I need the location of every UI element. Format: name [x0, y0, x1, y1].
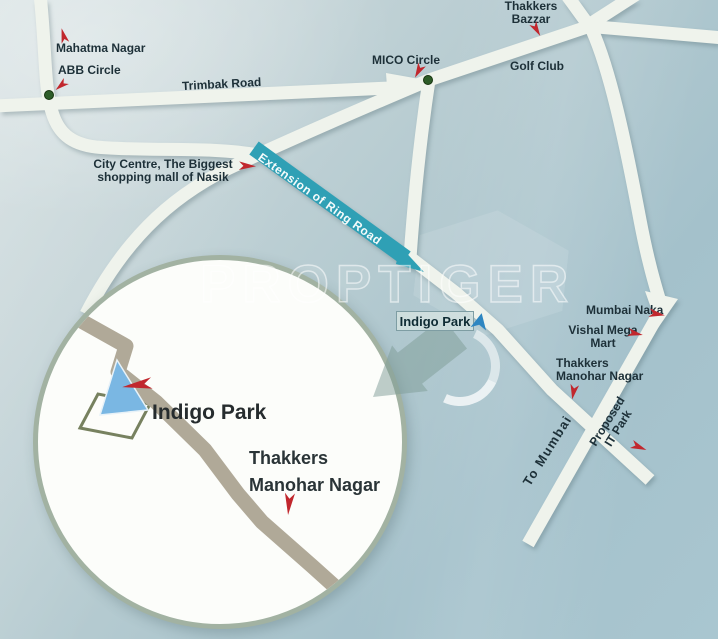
inset-thakkers-label-line1: Thakkers — [249, 448, 328, 469]
location-map: Indigo Park Thakkers Manohar Nagar Mahat… — [0, 0, 718, 639]
thakkers-manohar-label: Thakkers Manohar Nagar — [556, 357, 643, 383]
top-right-road-path — [586, 26, 718, 38]
city-centre-label: City Centre, The Biggest shopping mall o… — [92, 158, 234, 184]
thakkers-bazzar-line2: Bazzar — [496, 13, 566, 26]
vishal-mega-mart-label: Vishal Mega Mart — [568, 324, 638, 350]
golf-club-label: Golf Club — [510, 60, 564, 73]
abb-circle-label: ABB Circle — [58, 64, 121, 77]
mico-circle-dot-icon — [424, 76, 433, 85]
abb-circle-dot-icon — [45, 91, 54, 100]
thakkers-bazzar-label: Thakkers Bazzar — [496, 0, 566, 26]
mico-circle-label: MICO Circle — [372, 54, 440, 67]
thakkers-manohar-line2: Manohar Nagar — [556, 370, 643, 383]
mico-south-road-path — [410, 80, 429, 258]
inset-thakkers-label-line2: Manohar Nagar — [249, 475, 380, 496]
mumbai-naka-road-path — [566, 0, 661, 305]
vishal-mega-mart-line2: Mart — [568, 337, 638, 350]
proptiger-watermark: PROPTIGER — [200, 254, 575, 315]
mahatma-nagar-label: Mahatma Nagar — [56, 42, 145, 55]
city-centre-line2: shopping mall of Nasik — [92, 171, 234, 184]
inset-indigo-park-label: Indigo Park — [152, 401, 266, 425]
